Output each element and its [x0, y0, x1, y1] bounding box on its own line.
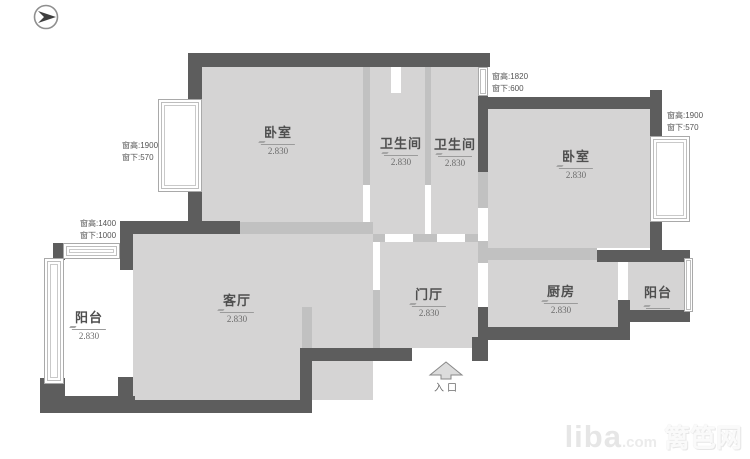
wall-segment [597, 250, 690, 262]
watermark-suffix: .com [622, 434, 657, 451]
room-label-entry-hall: 门厅 2.830 [412, 284, 446, 321]
annotation-line: 窗下:570 [667, 122, 703, 134]
partition [478, 248, 597, 260]
room-elevation: 2.830 [384, 155, 418, 167]
wall-segment [120, 221, 133, 270]
door-opening [437, 234, 465, 242]
wall-segment [300, 348, 412, 361]
room-name: 门厅 [412, 284, 446, 303]
balcony-left-window-top [63, 243, 120, 259]
window-annotation-bedroom-right: 窗高:1900 窗下:570 [667, 110, 703, 134]
window-annotation-balcony-left: 窗高:1400 窗下:1000 [80, 218, 116, 242]
room-elevation: 2.830 [261, 144, 295, 156]
wall-segment [650, 220, 662, 262]
room-name: 厨房 [544, 281, 578, 300]
room-name: 卫生间 [434, 134, 476, 153]
room-elevation: 2.830 [72, 329, 106, 341]
annotation-line: 窗下:1000 [80, 230, 116, 242]
room-name: 阳台 [644, 282, 672, 301]
room-label-balcony-left: 阳台 2.830 [72, 307, 106, 344]
wall-segment [478, 307, 488, 339]
room-label-living-room: 客厅 2.830 [220, 290, 254, 327]
top-middle-window [478, 67, 488, 96]
entrance-label: 入口 [434, 379, 460, 394]
door-opening [385, 234, 413, 242]
entrance-arrow-icon [428, 361, 464, 381]
bedroom-right-window [650, 136, 690, 222]
annotation-line: 窗高:1900 [667, 110, 703, 122]
door-opening [363, 185, 370, 222]
room-name: 卧室 [559, 146, 593, 165]
room-elevation: 2.830 [220, 312, 254, 324]
room-label-bathroom-1: 卫生间 2.830 [380, 133, 422, 170]
door-opening [425, 185, 431, 234]
partition [478, 172, 488, 208]
room-label-balcony-right: 阳台 [644, 282, 672, 319]
partition [363, 67, 370, 185]
wall-segment [118, 400, 312, 413]
balcony-left-window-side [44, 258, 64, 384]
watermark: liba .com 篱笆网 [565, 418, 742, 455]
wall-segment [188, 53, 202, 99]
partition [373, 290, 380, 348]
watermark-brand: liba [565, 419, 622, 455]
wall-segment [120, 221, 240, 234]
annotation-line: 窗高:1400 [80, 218, 116, 230]
wall-segment [188, 53, 490, 67]
room-label-bathroom-2: 卫生间 2.830 [434, 134, 476, 171]
window-annotation-top-middle: 窗高:1820 窗下:600 [492, 71, 528, 95]
room-label-kitchen: 厨房 2.830 [544, 281, 578, 318]
annotation-line: 窗高:1820 [492, 71, 528, 83]
room-label-bedroom-right: 卧室 2.830 [559, 146, 593, 183]
room-name: 卧室 [261, 122, 295, 141]
floor-plan: 卧室 2.830 卫生间 2.830 卫生间 2.830 卧室 2.830 客厅… [0, 0, 750, 459]
north-arrow-icon [30, 1, 62, 33]
wall-segment [482, 97, 662, 109]
room-elevation [646, 308, 670, 314]
partition [240, 222, 373, 234]
watermark-cn-name: 篱笆网 [664, 418, 742, 455]
annotation-line: 窗下:600 [492, 83, 528, 95]
room-elevation: 2.830 [544, 303, 578, 315]
bedroom-left-window [158, 99, 202, 192]
balcony-right-window [684, 258, 693, 312]
room-elevation: 2.830 [559, 168, 593, 180]
wall-segment [472, 337, 488, 361]
duct-shaft [391, 67, 401, 93]
room-label-bedroom-left: 卧室 2.830 [261, 122, 295, 159]
room-name: 阳台 [72, 307, 106, 326]
partition [425, 67, 431, 185]
window-annotation-bedroom-left: 窗高:1900 窗下:570 [122, 140, 158, 164]
room-name: 客厅 [220, 290, 254, 309]
annotation-line: 窗下:570 [122, 152, 158, 164]
room-name: 卫生间 [380, 133, 422, 152]
room-elevation: 2.830 [412, 306, 446, 318]
wall-segment [485, 327, 618, 340]
annotation-line: 窗高:1900 [122, 140, 158, 152]
wall-segment [300, 361, 312, 413]
room-elevation: 2.830 [438, 156, 472, 168]
wall-segment [478, 96, 488, 172]
partition [302, 307, 312, 348]
